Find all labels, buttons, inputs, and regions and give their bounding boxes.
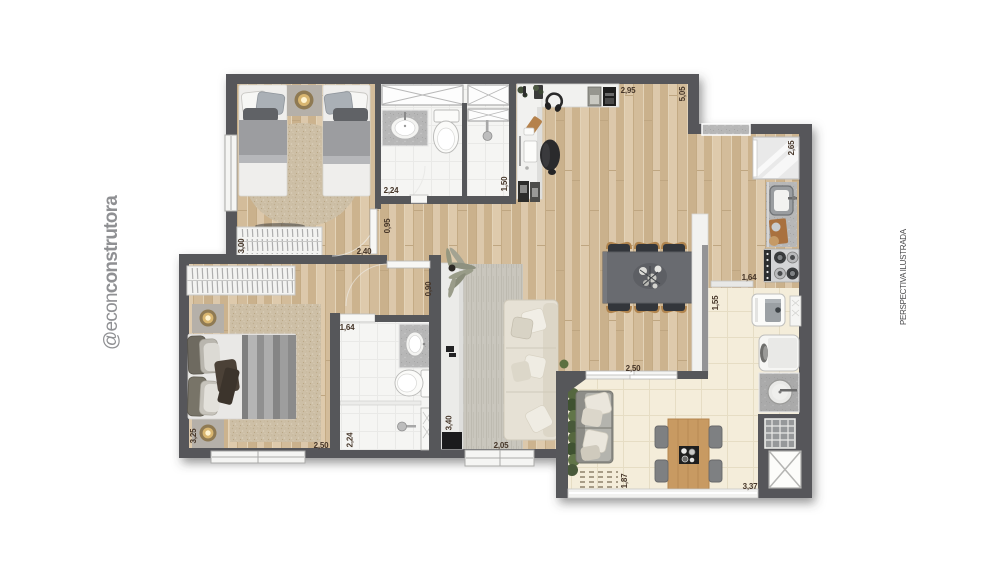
svg-text:1,64: 1,64 — [742, 273, 758, 282]
svg-text:2,95: 2,95 — [621, 86, 637, 95]
svg-text:2,50: 2,50 — [314, 441, 330, 450]
svg-text:PERSPECTIVA ILUSTRADA: PERSPECTIVA ILUSTRADA — [899, 228, 908, 325]
svg-text:1,55: 1,55 — [711, 295, 720, 311]
svg-text:1,87: 1,87 — [620, 473, 629, 489]
svg-text:2,50: 2,50 — [626, 364, 642, 373]
svg-text:1,50: 1,50 — [500, 176, 509, 192]
svg-text:2,65: 2,65 — [787, 140, 796, 156]
svg-text:2,24: 2,24 — [346, 432, 355, 448]
svg-text:3,37: 3,37 — [743, 482, 759, 491]
svg-text:5,05: 5,05 — [678, 86, 687, 102]
svg-text:2,05: 2,05 — [494, 441, 510, 450]
svg-text:3,40: 3,40 — [445, 415, 454, 431]
svg-text:1,64: 1,64 — [340, 323, 356, 332]
svg-text:@econconstrutora: @econconstrutora — [101, 195, 122, 350]
svg-text:0,95: 0,95 — [383, 218, 392, 234]
svg-text:2,24: 2,24 — [384, 186, 400, 195]
svg-text:2,40: 2,40 — [357, 247, 373, 256]
svg-text:0,90: 0,90 — [424, 281, 433, 297]
svg-text:3,00: 3,00 — [237, 238, 246, 254]
svg-text:3,25: 3,25 — [189, 428, 198, 444]
